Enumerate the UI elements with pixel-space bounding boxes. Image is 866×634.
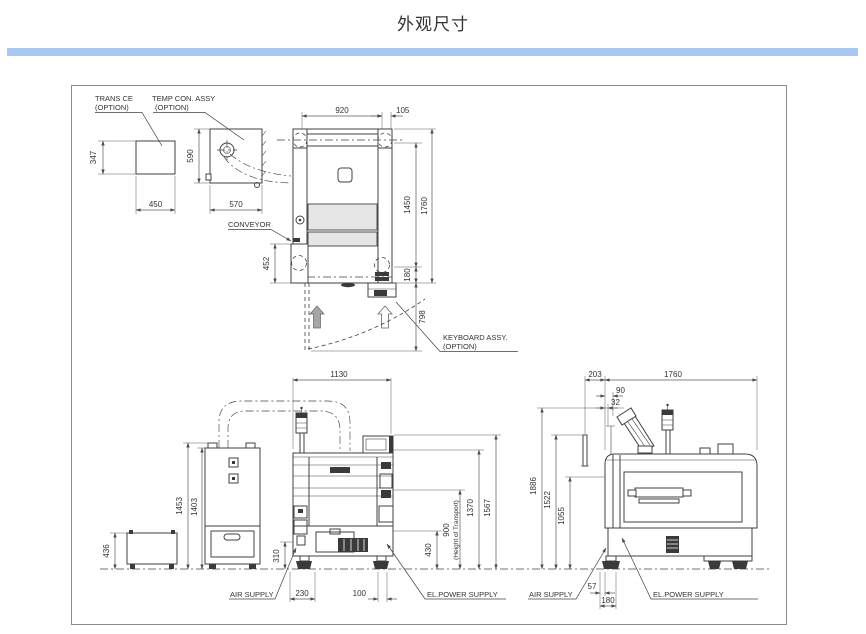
dim-900-note: (Height of Transport) [453, 500, 460, 560]
flow-arrow-gray [310, 306, 324, 328]
air-supply-label-side: AIR SUPPLY [529, 590, 573, 599]
front-grille [338, 538, 368, 552]
dim-1522: 1522 [543, 491, 552, 509]
dim-90: 90 [616, 386, 625, 395]
side-base [608, 528, 752, 556]
dim-590: 590 [186, 149, 195, 163]
front-monitor [363, 436, 393, 453]
trans-ce-label-line2: (OPTION) [95, 103, 129, 112]
dim-1760-side: 1760 [664, 370, 682, 379]
stand-box: 436 [102, 530, 177, 569]
machine-side-body [602, 444, 757, 569]
keyboard-swing-arc [308, 299, 425, 349]
el-power-label-side: EL.POWER SUPPLY [653, 590, 724, 599]
temp-con-label-line2: (OPTION) [155, 103, 189, 112]
dim-900: 900 [442, 523, 451, 537]
dim-203: 203 [588, 370, 602, 379]
dim-105: 105 [396, 106, 410, 115]
temp-con-assy-box: TEMP CON. ASSY (OPTION) 590 570 [152, 94, 291, 214]
drawing-canvas: TRANS CE (OPTION) 347 450 [72, 86, 786, 624]
dim-1450: 1450 [403, 196, 412, 214]
side-foot-mid [708, 561, 721, 569]
machine-front-body [293, 453, 393, 569]
dim-32: 32 [611, 398, 620, 407]
dim-430: 430 [424, 543, 433, 557]
dim-1370: 1370 [466, 499, 475, 517]
page-title: 外观尺寸 [0, 10, 866, 35]
side-foot-right [732, 561, 748, 569]
conveyor-leader [228, 230, 291, 242]
plan-view: TRANS CE (OPTION) 347 450 [89, 94, 518, 352]
dim-347: 347 [89, 150, 98, 164]
dim-920: 920 [335, 106, 349, 115]
dim-798: 798 [418, 310, 427, 324]
dim-1130: 1130 [330, 370, 348, 379]
dim-436: 436 [102, 544, 111, 558]
trans-ce-box: TRANS CE (OPTION) 347 450 [89, 94, 175, 214]
dim-180-side: 180 [601, 596, 615, 605]
front-signal-tower [296, 407, 307, 453]
air-supply-label-front: AIR SUPPLY [230, 590, 274, 599]
side-plate [583, 435, 587, 466]
side-foot-left [602, 561, 620, 569]
hose-inner [228, 411, 340, 451]
dim-100: 100 [353, 589, 367, 598]
dim-310: 310 [272, 549, 281, 563]
dimension-drawing-page: 外观尺寸 TRANS CE (OPTION) 347 [0, 0, 866, 634]
dim-450: 450 [149, 200, 163, 209]
dim-452: 452 [262, 256, 271, 270]
temp-con-label-line1: TEMP CON. ASSY [152, 94, 215, 103]
dim-1403: 1403 [190, 498, 199, 516]
control-cabinet: 1453 1403 [175, 443, 260, 569]
front-foot-right [373, 561, 389, 569]
side-grille [666, 536, 679, 553]
dim-1567: 1567 [483, 499, 492, 517]
side-signal-tower [662, 404, 673, 454]
side-handle [635, 488, 683, 497]
rail-extension [305, 283, 309, 350]
dim-1760-plan: 1760 [420, 197, 429, 215]
dim-180-plan: 180 [403, 268, 412, 282]
conveyor-block [291, 244, 308, 283]
keyboard-label-line2: (OPTION) [443, 342, 477, 351]
keyboard-label-line1: KEYBOARD ASSY. [443, 333, 507, 342]
el-power-label-front: EL.POWER SUPPLY [427, 590, 498, 599]
title-accent-bar [7, 48, 858, 56]
dim-230: 230 [295, 589, 309, 598]
front-foot-left [296, 561, 312, 569]
side-view: 203 1760 90 32 1886 1522 [528, 370, 758, 609]
conveyor-clamp [293, 238, 300, 242]
trans-ce-label-line1: TRANS CE [95, 94, 133, 103]
dim-570: 570 [229, 200, 243, 209]
flow-arrow-white [378, 306, 392, 328]
hose-outer [219, 401, 350, 451]
drawing-frame: TRANS CE (OPTION) 347 450 [71, 85, 787, 625]
dim-57: 57 [588, 582, 597, 591]
conveyor-label: CONVEYOR [228, 220, 272, 229]
dim-1886: 1886 [529, 477, 538, 495]
dim-1055: 1055 [557, 507, 566, 525]
dim-1453: 1453 [175, 497, 184, 515]
